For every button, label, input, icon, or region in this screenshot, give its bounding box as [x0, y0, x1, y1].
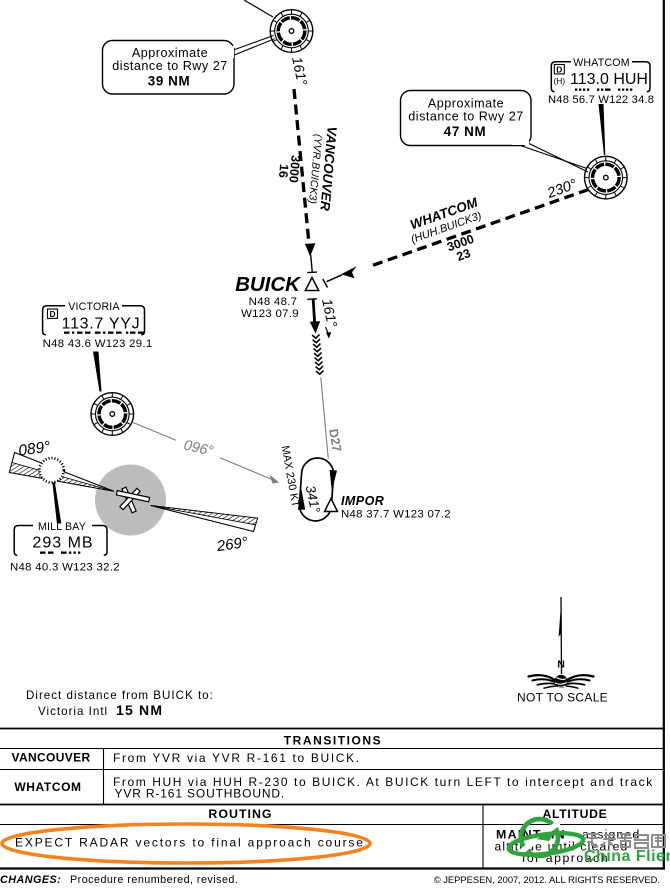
svg-text:N48 37.7 W123 07.2: N48 37.7 W123 07.2: [341, 509, 451, 521]
svg-text:23: 23: [455, 246, 473, 264]
svg-text:341°: 341°: [303, 484, 324, 515]
svg-text:D: D: [49, 309, 55, 319]
svg-text:N48 43.6 W123 29.1: N48 43.6 W123 29.1: [43, 338, 153, 350]
svg-text:293 MB: 293 MB: [32, 535, 93, 552]
svg-text:D27: D27: [326, 428, 344, 453]
svg-text:096°: 096°: [182, 437, 215, 459]
svg-text:113.7 YYJ: 113.7 YYJ: [62, 316, 141, 333]
svg-text:ALTITUDE: ALTITUDE: [543, 807, 608, 821]
svg-text:113.0 HUH: 113.0 HUH: [570, 71, 648, 88]
svg-text:distance to Rwy 27: distance to Rwy 27: [408, 110, 523, 124]
svg-text:From YVR via YVR R-161 to BUIC: From YVR via YVR R-161 to BUICK.: [113, 751, 361, 765]
svg-text:269°: 269°: [215, 534, 249, 555]
svg-text:distance to Rwy 27: distance to Rwy 27: [112, 59, 227, 73]
svg-text:089°: 089°: [17, 438, 51, 459]
svg-text:Approximate: Approximate: [132, 46, 208, 60]
svg-text:16: 16: [276, 164, 291, 179]
svg-text:N48 40.3 W123 32.2: N48 40.3 W123 32.2: [10, 562, 120, 574]
svg-text:MAX 230 KT: MAX 230 KT: [279, 445, 302, 509]
svg-text:NOT TO SCALE: NOT TO SCALE: [517, 691, 608, 705]
svg-text:Direct distance from BUICK to:: Direct distance from BUICK to:: [26, 689, 214, 702]
svg-text:EXPECT RADAR vectors to final: EXPECT RADAR vectors to final approach c…: [15, 836, 370, 850]
svg-text:N48 48.7: N48 48.7: [249, 296, 298, 308]
svg-text:YVR R-161 SOUTHBOUND.: YVR R-161 SOUTHBOUND.: [115, 787, 286, 801]
svg-text:161°: 161°: [289, 55, 311, 87]
svg-text:IMPOR: IMPOR: [341, 494, 385, 508]
svg-text:© JEPPESEN, 2007, 2012. ALL RI: © JEPPESEN, 2007, 2012. ALL RIGHTS RESER…: [434, 874, 660, 885]
svg-text:MILL BAY: MILL BAY: [38, 521, 86, 533]
svg-text:D: D: [556, 64, 562, 74]
svg-text:VANCOUVER: VANCOUVER: [12, 751, 91, 765]
svg-text:Victoria Intl: Victoria Intl: [38, 705, 108, 718]
svg-text:WHATCOM: WHATCOM: [14, 780, 81, 794]
svg-text:N: N: [557, 659, 565, 671]
svg-text:VICTORIA: VICTORIA: [68, 301, 120, 313]
svg-text:(H): (H): [553, 76, 565, 86]
svg-text:47 NM: 47 NM: [444, 124, 486, 139]
svg-text:39 NM: 39 NM: [148, 74, 190, 89]
svg-text:BUICK: BUICK: [235, 273, 302, 296]
svg-text:15 NM: 15 NM: [116, 702, 163, 718]
svg-text:Approximate: Approximate: [428, 97, 504, 111]
svg-text:161°: 161°: [319, 297, 341, 329]
svg-text:TRANSITIONS: TRANSITIONS: [284, 734, 382, 748]
svg-text:ROUTING: ROUTING: [208, 807, 272, 821]
svg-text:CHANGES:Procedure renumbered,: CHANGES:Procedure renumbered, revised.: [0, 874, 238, 886]
svg-text:230°: 230°: [544, 177, 579, 203]
svg-text:WHATCOM: WHATCOM: [573, 57, 630, 69]
svg-text:China Flier: China Flier: [584, 848, 670, 865]
svg-text:W123 07.9: W123 07.9: [241, 308, 299, 320]
